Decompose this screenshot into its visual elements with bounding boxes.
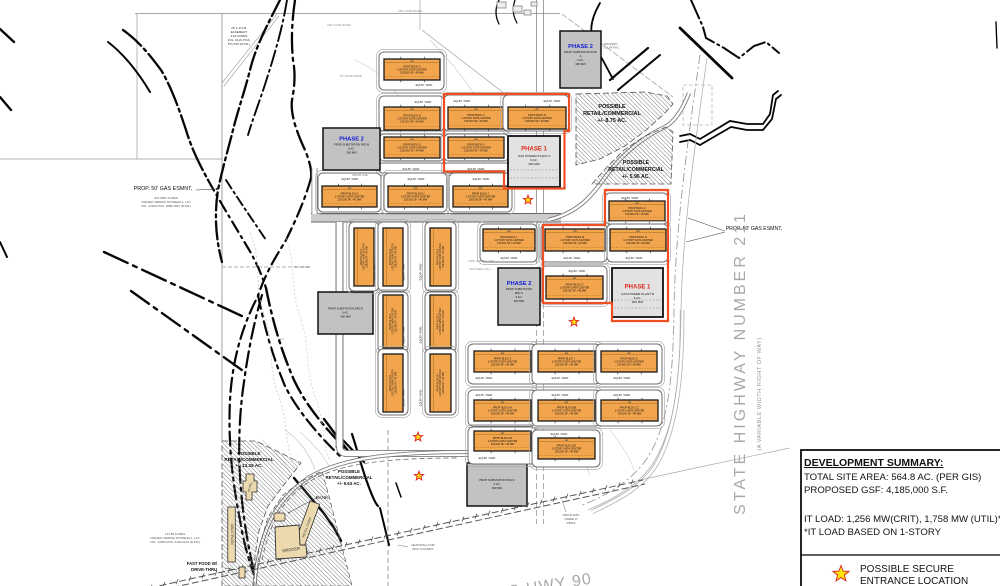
svg-text:HELI: HELI [278,337,284,341]
svg-text:DEVELOPMENT SUMMARY:: DEVELOPMENT SUMMARY: [804,457,943,469]
svg-text:135,000 SF / 40 MW: 135,000 SF / 40 MW [442,245,445,268]
svg-text:RETAIL/COMMERCIAL: RETAIL/COMMERCIAL [326,475,373,480]
svg-text:EQUIP. YARD: EQUIP. YARD [552,376,569,380]
svg-text:EQUIP. YARD: EQUIP. YARD [402,264,406,281]
svg-text:EQUIP. YARD: EQUIP. YARD [402,390,406,407]
svg-text:EQUIP. YARD: EQUIP. YARD [473,177,490,181]
svg-text:115' GATE ROAD: 115' GATE ROAD [327,23,351,27]
svg-text:200 MW: 200 MW [632,300,644,304]
svg-text:POSSIBLE: POSSIBLE [598,104,626,110]
svg-text:VOL. 13008 PGS. 2120-2123 (R.P: VOL. 13008 PGS. 2120-2123 (R.P.R.) [150,540,200,544]
svg-text:135,000 SF / 40 MW: 135,000 SF / 40 MW [442,371,445,394]
svg-text:RETAIL/COMMERCIAL: RETAIL/COMMERCIAL [224,457,273,462]
svg-text:135,000 SF / 40 MW: 135,000 SF / 40 MW [464,149,488,153]
svg-text:+/- 9.63 AC.: +/- 9.63 AC. [337,481,361,486]
svg-text:(A VARIABLE WIDTH RIGHT OF WAY: (A VARIABLE WIDTH RIGHT OF WAY) [757,337,763,450]
svg-text:EQUIP. YARD: EQUIP. YARD [564,256,581,260]
svg-text:75' GATE ROAD: 75' GATE ROAD [340,74,363,78]
svg-text:PROP. 50' GAS ESMNT,: PROP. 50' GAS ESMNT, [134,186,193,192]
svg-text:ENTRANCE LOCATION: ENTRANCE LOCATION [860,576,968,586]
svg-text:WATER LINE: WATER LINE [352,173,368,177]
svg-text:135,000 SF / 40 MW: 135,000 SF / 40 MW [338,198,362,202]
svg-text:135,000 SF / 40 MW: 135,000 SF / 40 MW [555,412,579,416]
svg-text:135,000 SF / 40 MW: 135,000 SF / 40 MW [395,245,398,268]
svg-text:ORIG. SURVEY LINE: ORIG. SURVEY LINE [468,259,493,263]
svg-text:EQUIP. YARD: EQUIP. YARD [373,264,377,281]
svg-text:STATE HIGHWAY NUMBER 211: STATE HIGHWAY NUMBER 211 [732,211,749,515]
svg-text:+/- 13.28 AC.: +/- 13.28 AC. [235,463,262,468]
svg-text:135,000 SF / 40 MW: 135,000 SF / 40 MW [464,119,488,123]
svg-text:135,000 SF / 40 MW: 135,000 SF / 40 MW [617,363,641,367]
svg-text:135,000 SF / 40 MW: 135,000 SF / 40 MW [400,71,424,75]
svg-text:*IT LOAD BASED ON 1-STORY: *IT LOAD BASED ON 1-STORY [804,527,942,538]
svg-text:135,000 SF / 40 MW: 135,000 SF / 40 MW [400,149,424,153]
svg-text:EQUIP. YARD: EQUIP. YARD [622,196,639,200]
svg-text:VOL. 12919 PGS. 1808-1812 (R.P: VOL. 12919 PGS. 1808-1812 (R.P.R.) [141,204,191,208]
svg-text:PHASE 1: PHASE 1 [625,285,651,291]
svg-text:135,000 SF / 40 MW: 135,000 SF / 40 MW [366,245,369,268]
svg-text:EQUIP. YARD: EQUIP. YARD [614,393,631,397]
svg-text:135,000 SF / 40 MW: 135,000 SF / 40 MW [626,241,650,245]
svg-text:BOX CULVERT: BOX CULVERT [413,547,434,551]
svg-text:EQUIP. YARD: EQUIP. YARD [419,390,423,407]
svg-text:POSSIBLE: POSSIBLE [237,451,260,456]
svg-text:135,000 SF / 40 MW: 135,000 SF / 40 MW [625,212,649,216]
svg-text:300 MW: 300 MW [340,315,351,319]
svg-text:EQUIP. YARD: EQUIP. YARD [476,393,493,397]
svg-text:100' GATE ROAD: 100' GATE ROAD [398,9,423,13]
svg-text:135,000 SF / 40 MW: 135,000 SF / 40 MW [563,289,587,293]
svg-text:+/- 8.75 AC.: +/- 8.75 AC. [597,118,627,124]
svg-text:135,000 SF / 40 MW: 135,000 SF / 40 MW [618,412,642,416]
svg-text:135,000 SF / 40 MW: 135,000 SF / 40 MW [404,198,428,202]
svg-text:BANK: BANK [316,495,329,500]
svg-text:EQUIP. YARD: EQUIP. YARD [479,456,496,460]
svg-text:EQUIP. YARD: EQUIP. YARD [415,100,432,104]
svg-text:EQUIP. YARD: EQUIP. YARD [408,177,425,181]
svg-text:(NOT FIELD LOC.): (NOT FIELD LOC.) [469,267,491,271]
svg-text:EQUIP. YARD: EQUIP. YARD [626,256,643,260]
svg-text:135,000 SF / 40 MW: 135,000 SF / 40 MW [395,310,398,333]
svg-text:EQUIP. YARD: EQUIP. YARD [501,256,518,260]
svg-text:IT LOAD: 1,256 MW(CRIT), 1,758: IT LOAD: 1,256 MW(CRIT), 1,758 MW (UTIL)… [804,514,1000,525]
svg-text:135,000 SF / 40 MW: 135,000 SF / 40 MW [442,310,445,333]
svg-text:EQUIP. YARD: EQUIP. YARD [551,432,568,436]
svg-text:135,000 SF / 40 MW: 135,000 SF / 40 MW [497,241,521,245]
svg-text:135,000 SF / 40 MW: 135,000 SF / 40 MW [400,120,424,124]
svg-text:PHASE 1: PHASE 1 [521,147,547,153]
svg-text:135,000 SF / 40 MW: 135,000 SF / 40 MW [563,241,587,245]
svg-text:300 MW: 300 MW [514,299,525,303]
svg-text:300 MW: 300 MW [575,62,586,66]
svg-text:POSSIBLE SECURE: POSSIBLE SECURE [860,564,954,575]
svg-text:135,000 SF / 40 MW: 135,000 SF / 40 MW [491,442,515,446]
svg-text:VOL (R.P.R.): VOL (R.P.R.) [603,46,619,50]
svg-text:RETAIL/COMMERCIAL: RETAIL/COMMERCIAL [608,167,664,173]
svg-text:571-575 (R.P.R.): 571-575 (R.P.R.) [228,42,250,46]
svg-text:RETAIL/COMMERCIAL: RETAIL/COMMERCIAL [583,111,641,117]
svg-text:PIPES: PIPES [567,521,576,525]
svg-text:300 MW: 300 MW [492,486,503,490]
svg-text:EQUIP. YARD: EQUIP. YARD [419,264,423,281]
svg-text:TOTAL SITE AREA: 564.8 AC. (PE: TOTAL SITE AREA: 564.8 AC. (PER GIS) [804,472,981,483]
svg-text:135,000 SF / 40 MW: 135,000 SF / 40 MW [555,450,579,454]
svg-text:DRIVE-THRU: DRIVE-THRU [191,567,217,572]
svg-text:300 MW: 300 MW [346,151,357,155]
svg-text:135,000 SF / 40 MW: 135,000 SF / 40 MW [555,363,579,367]
svg-text:135,000 SF / 40 MW: 135,000 SF / 40 MW [491,412,515,416]
svg-text:+/- 5.96 AC.: +/- 5.96 AC. [622,174,650,180]
svg-text:EQUIP. YARD: EQUIP. YARD [402,327,406,344]
svg-text:PROPOSED GSF: 4,185,000 S.F.: PROPOSED GSF: 4,185,000 S.F. [804,485,948,496]
svg-text:EQUIP. YARD: EQUIP. YARD [342,177,359,181]
svg-text:DAY ROAD: DAY ROAD [294,265,310,269]
svg-text:EQUIP. YARD: EQUIP. YARD [552,393,569,397]
svg-text:135,000 SF / 40 MW: 135,000 SF / 40 MW [395,371,398,394]
svg-text:EQUIP. YARD: EQUIP. YARD [419,327,423,344]
svg-text:EQUIP. YARD: EQUIP. YARD [569,269,586,273]
svg-text:EQUIP. YARD: EQUIP. YARD [614,376,631,380]
svg-text:EQUIP. YARD: EQUIP. YARD [476,376,493,380]
svg-text:135,000 SF / 40 MW: 135,000 SF / 40 MW [491,363,515,367]
svg-text:135,000 SF / 40 MW: 135,000 SF / 40 MW [469,198,493,202]
svg-text:POSSIBLE: POSSIBLE [623,160,650,166]
svg-text:EQUIP. YARD: EQUIP. YARD [544,99,561,103]
svg-text:135,000 SF / 40 MW: 135,000 SF / 40 MW [525,119,549,123]
svg-text:FAST FOOD W/: FAST FOOD W/ [187,561,218,566]
svg-text:RETAIL STRIP: RETAIL STRIP [231,523,235,544]
svg-text:EQUIP. YARD: EQUIP. YARD [454,99,471,103]
svg-text:EQUIP. YARD: EQUIP. YARD [416,83,433,87]
svg-text:POSSIBLE: POSSIBLE [338,469,360,474]
svg-text:200 MW: 200 MW [528,162,540,166]
